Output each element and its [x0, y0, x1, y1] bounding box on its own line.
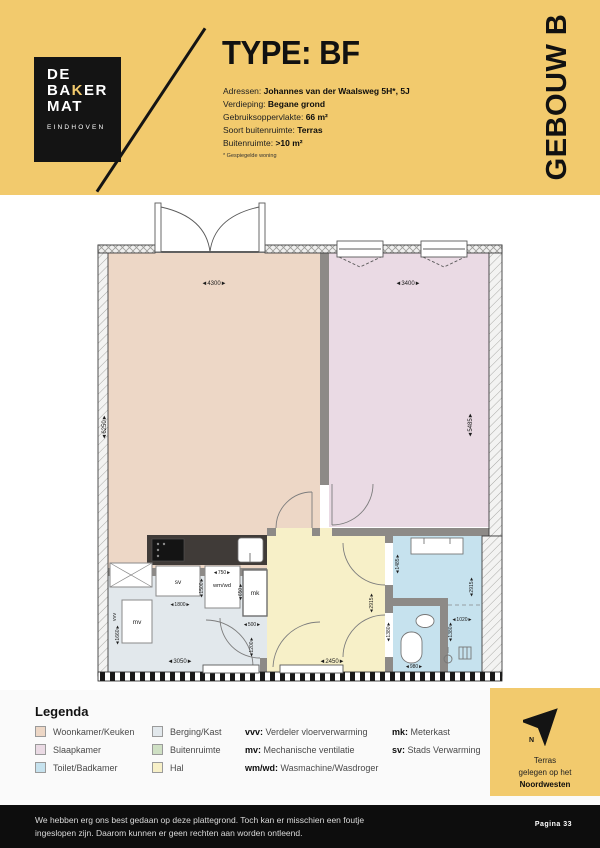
- floorplan-area: sv wm/wd mk mv vvv ◄4300► ◄3400► ◄6250► …: [0, 195, 600, 690]
- disclaimer-text: We hebben erg ons best gedaan op deze pl…: [35, 814, 364, 840]
- page-number: Pagina 33: [535, 821, 572, 828]
- label-mv: mv: [133, 619, 142, 626]
- logo-line-2: BAKER: [47, 83, 121, 99]
- detail-oppervlakte: Gebruiksoppervlakte: 66 m²: [223, 111, 410, 124]
- dim-shower-width: ◄1020►: [451, 617, 472, 623]
- swatch-toilet: [35, 762, 46, 773]
- building-label: GEBOUW B: [537, 0, 577, 197]
- detail-buitenruimte-soort: Soort buitenruimte: Terras: [223, 124, 410, 137]
- dim-living-width: ◄4300►: [201, 281, 226, 287]
- detail-buitenruimte: Buitenruimte: >10 m²: [223, 137, 410, 150]
- legend-item-woonkamer: Woonkamer/Keuken: [35, 726, 134, 737]
- legend-abbr-mk: mk: Meterkast: [392, 727, 450, 737]
- detail-adressen: Adressen: Johannes van der Waalsweg 5H*,…: [223, 85, 410, 98]
- dim-bath-height: ◄2915►: [469, 576, 475, 597]
- front-door-sill: [280, 665, 343, 673]
- svg-text:N: N: [529, 737, 534, 744]
- detail-verdieping: Verdieping: Begane grond: [223, 98, 410, 111]
- legend-abbr-sv: sv: Stads Verwarming: [392, 745, 481, 755]
- dim-berging-left: ◄1660►: [115, 624, 121, 645]
- dim-toilet-left: ◄1380►: [386, 621, 392, 642]
- logo-city: EINDHOVEN: [47, 124, 121, 131]
- room-hal: [267, 528, 385, 672]
- compass-box: N Terras gelegen op het Noordwesten: [490, 688, 600, 796]
- dim-mk-width: ◄500►: [243, 622, 261, 628]
- legend-item-berging: Berging/Kast: [152, 726, 222, 737]
- legend-abbr-wmwd: wm/wd: Wasmachine/Wasdroger: [245, 763, 378, 773]
- label-sv: sv: [175, 579, 182, 586]
- floorplan-drawing: sv wm/wd mk mv vvv ◄4300► ◄3400► ◄6250► …: [0, 195, 600, 690]
- dim-berging-width: ◄3050►: [167, 659, 192, 665]
- page-title: TYPE: BF: [222, 34, 360, 72]
- french-doors: [155, 203, 265, 252]
- toilet: [401, 632, 422, 663]
- legend-abbr-mv: mv: Mechanische ventilatie: [245, 745, 355, 755]
- swatch-berging: [152, 726, 163, 737]
- swatch-buitenruimte: [152, 744, 163, 755]
- dim-wmwd-width: ◄750►: [213, 570, 231, 576]
- dim-berging-niche: ◄1800►: [169, 602, 190, 608]
- dim-wmwd-right: ◄650►: [238, 583, 244, 601]
- legend-item-hal: Hal: [152, 762, 184, 773]
- swatch-slaapkamer: [35, 744, 46, 755]
- label-mk: mk: [251, 590, 260, 597]
- logo-line-3: MAT: [47, 99, 121, 115]
- legend-item-toilet: Toilet/Badkamer: [35, 762, 118, 773]
- dim-hall-entry: ◄1200►: [249, 636, 255, 657]
- logo-k-accent: K: [72, 82, 84, 99]
- north-arrow-icon: N: [523, 700, 567, 746]
- legend-item-slaapkamer: Slaapkamer: [35, 744, 101, 755]
- dim-bedroom-width: ◄3400►: [395, 281, 420, 287]
- dim-toilet-width: ◄980►: [405, 664, 423, 670]
- hand-basin: [416, 615, 434, 628]
- vanity-sink: [411, 538, 463, 554]
- compass-text: Terras gelegen op het Noordwesten: [490, 755, 600, 791]
- berging-door-sill: [203, 665, 259, 673]
- room-slaapkamer: [329, 253, 489, 527]
- legend-title: Legenda: [35, 704, 88, 719]
- label-wmwd: wm/wd: [212, 583, 231, 589]
- dim-toilet-right: ◄1380►: [448, 621, 454, 642]
- legend-section: Legenda Woonkamer/Keuken Slaapkamer Toil…: [0, 690, 600, 805]
- header-band: DE BAKER MAT EINDHOVEN TYPE: BF Adressen…: [0, 0, 600, 195]
- mirrored-dwelling-footnote: * Gespiegelde woning: [223, 153, 277, 159]
- dwelling-details: Adressen: Johannes van der Waalsweg 5H*,…: [223, 85, 410, 150]
- dim-bath-top: ◄1485►: [395, 553, 401, 574]
- dim-hall-height: ◄2915►: [369, 592, 375, 613]
- room-woonkamer-keuken: [108, 253, 320, 568]
- footer-bar: We hebben erg ons best gedaan op deze pl…: [0, 805, 600, 848]
- label-vvv: vvv: [112, 613, 118, 622]
- dim-living-height: ◄6250►: [102, 414, 108, 439]
- dim-bedroom-height: ◄5485►: [468, 412, 474, 437]
- dim-wmwd-left: ◄1500►: [199, 577, 205, 598]
- brand-logo: DE BAKER MAT EINDHOVEN: [34, 57, 121, 162]
- legend-item-buitenruimte: Buitenruimte: [152, 744, 221, 755]
- dim-hall-width: ◄2450►: [319, 659, 344, 665]
- logo-line-1: DE: [47, 67, 121, 83]
- legend-abbr-vvv: vvv: Verdeler vloerverwarming: [245, 727, 368, 737]
- swatch-hal: [152, 762, 163, 773]
- swatch-woonkamer: [35, 726, 46, 737]
